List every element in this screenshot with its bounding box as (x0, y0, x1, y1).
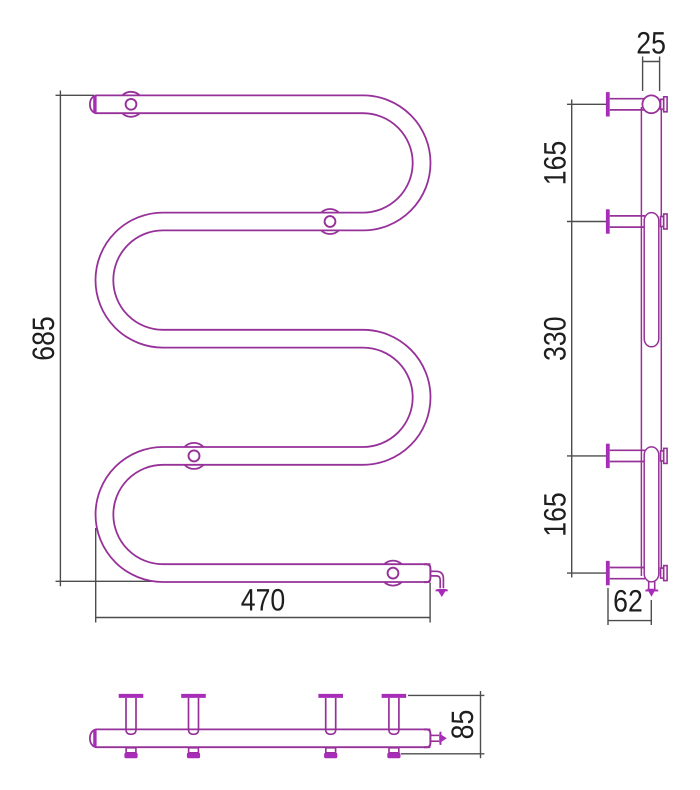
svg-text:330: 330 (538, 316, 573, 360)
svg-text:25: 25 (636, 26, 666, 61)
svg-text:470: 470 (241, 582, 285, 617)
svg-text:62: 62 (613, 584, 643, 619)
svg-text:85: 85 (445, 710, 480, 740)
svg-text:685: 685 (26, 316, 61, 360)
svg-text:165: 165 (538, 141, 573, 185)
svg-text:165: 165 (538, 492, 573, 536)
